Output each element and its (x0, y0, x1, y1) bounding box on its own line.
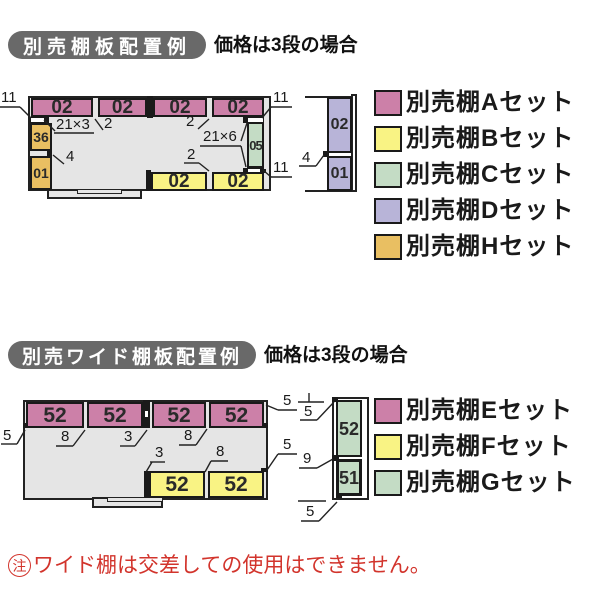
dim-8-a: 8 (61, 429, 69, 444)
shelf-e-2: 52 (87, 402, 143, 428)
legend-label-g: 別売棚Gセット (406, 471, 576, 495)
pillar-notch (145, 411, 148, 417)
top-section-subtitle: 価格は3段の場合 (214, 36, 358, 55)
dim-11-top-left: 11 (1, 90, 17, 105)
dim-3-b: 3 (155, 445, 163, 460)
shelf-b-2: 02 (212, 172, 264, 191)
legend-label-d: 別売棚Dセット (406, 199, 574, 223)
shelf-g-52: 52 (336, 400, 362, 457)
swatch-b (374, 126, 402, 152)
shelf-g-51: 51 (336, 459, 362, 496)
top-section-badge: 別売棚板配置例 (8, 31, 206, 59)
shelf-d-01: 01 (327, 156, 352, 191)
legend-item-b: 別売棚Bセット (374, 126, 574, 152)
legend-label-h: 別売棚Hセット (406, 235, 574, 259)
corner-mark (262, 423, 268, 428)
dim-21x6: 21×6 (203, 129, 237, 144)
dim-5-right: 5 (283, 437, 291, 452)
corner-mark (261, 468, 268, 472)
top-plan-door-panel (77, 189, 122, 194)
dim-8-c: 8 (216, 444, 224, 459)
dim-9-side: 9 (303, 451, 311, 466)
legend-label-f: 別売棚Fセット (406, 435, 572, 459)
legend-item-e: 別売棚Eセット (374, 398, 573, 424)
shelf-h-01: 01 (30, 156, 52, 190)
caution-mark-icon: 注 (8, 554, 31, 577)
swatch-a (374, 90, 402, 116)
dim-3-a: 3 (124, 429, 132, 444)
swatch-e (374, 398, 402, 424)
dim-21x3: 21×3 (56, 117, 90, 132)
corner-mark (332, 455, 339, 461)
dim-5-left: 5 (3, 428, 11, 443)
catalog-page: 別売棚板配置例 価格は3段の場合 02 02 02 02 36 01 05 02… (0, 0, 600, 600)
legend-item-d: 別売棚Dセット (374, 198, 574, 224)
corner-mark (260, 169, 266, 173)
legend-item-f: 別売棚Fセット (374, 434, 572, 460)
legend-item-h: 別売棚Hセット (374, 234, 574, 260)
shelf-e-4: 52 (209, 402, 264, 428)
swatch-g (374, 470, 402, 496)
dim-11-bottom-right: 11 (273, 160, 289, 175)
corner-mark (332, 397, 338, 402)
bottom-section-subtitle: 価格は3段の場合 (264, 346, 408, 365)
shelf-b-1: 02 (151, 172, 207, 191)
legend-label-c: 別売棚Cセット (406, 163, 574, 187)
corner-mark (336, 493, 342, 498)
legend-item-a: 別売棚Aセット (374, 90, 574, 116)
dim-4: 4 (66, 149, 74, 164)
shelf-e-3: 52 (152, 402, 206, 428)
legend-item-c: 別売棚Cセット (374, 162, 574, 188)
shelf-e-1: 52 (26, 402, 84, 428)
shelf-c-05: 05 (247, 122, 264, 168)
shelf-a-1: 02 (31, 98, 93, 117)
dim-11-top-right: 11 (273, 90, 289, 105)
legend-label-a: 別売棚Aセット (406, 91, 574, 115)
shelf-f-2: 52 (208, 471, 264, 498)
legend-item-g: 別売棚Gセット (374, 470, 576, 496)
dim-5-side-bottom: 5 (306, 504, 314, 519)
swatch-c (374, 162, 402, 188)
caution-note: 注 ワイド棚は交差しての使用はできません。 (8, 554, 431, 577)
swatch-h (374, 234, 402, 260)
dim-2-left: 2 (104, 116, 112, 131)
dim-5-side-top: 5 (304, 404, 312, 419)
dim-5-top-right: 5 (283, 393, 291, 408)
caution-text: ワイド棚は交差しての使用はできません。 (33, 555, 431, 576)
shelf-f-1: 52 (149, 471, 205, 498)
bottom-section-badge: 別売ワイド棚板配置例 (8, 341, 256, 369)
dim-8-b: 8 (184, 428, 192, 443)
dim-4-side-view: 4 (302, 150, 310, 165)
legend-label-e: 別売棚Eセット (406, 399, 573, 423)
dim-2-right: 2 (186, 114, 194, 129)
shelf-a-4: 02 (212, 98, 264, 117)
swatch-f (374, 434, 402, 460)
shelf-d-02: 02 (327, 97, 352, 153)
legend-label-b: 別売棚Bセット (406, 127, 574, 151)
dim-2-bottom: 2 (187, 147, 195, 162)
shelf-h-36: 36 (30, 123, 52, 151)
shelf-a-3: 02 (153, 98, 207, 117)
swatch-d (374, 198, 402, 224)
